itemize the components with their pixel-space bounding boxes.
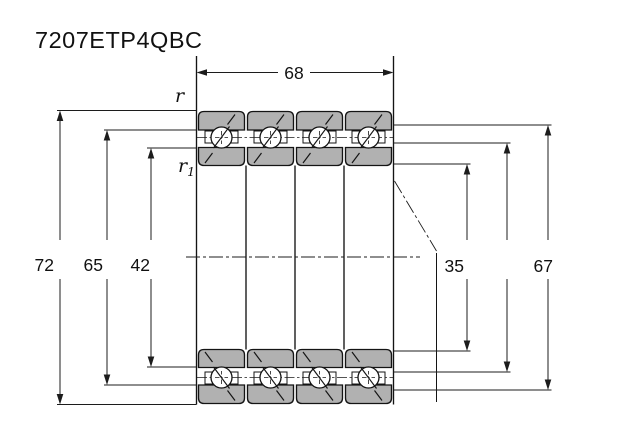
dimension-middle-line	[504, 143, 511, 372]
left-extension-lines	[57, 111, 197, 405]
dim-label-68: 68	[284, 63, 303, 83]
fillet-r1-subscript: 1	[187, 164, 195, 179]
dim-label-67: 67	[534, 256, 553, 276]
dimension-od-72: 72	[35, 111, 64, 405]
dimension-65: 65	[84, 130, 111, 385]
dim-label-35: 35	[445, 256, 464, 276]
dim-label-72: 72	[35, 255, 54, 275]
fillet-label-r1: r1	[178, 155, 195, 179]
dim-label-42: 42	[131, 255, 150, 275]
axis-jog	[395, 181, 437, 251]
right-extension-lines	[394, 125, 552, 390]
bearing-drawing: 7207ETP4QBC 68	[0, 0, 640, 440]
dim-label-65: 65	[84, 255, 103, 275]
fillet-label-r: r	[175, 85, 186, 107]
dimension-67: 67	[534, 125, 553, 390]
drawing-canvas: 7207ETP4QBC 68	[0, 0, 640, 440]
dimension-42: 42	[131, 148, 155, 367]
dimension-bore-35: 35	[445, 164, 471, 351]
dimension-width-68: 68	[197, 63, 394, 83]
part-number: 7207ETP4QBC	[35, 27, 202, 53]
